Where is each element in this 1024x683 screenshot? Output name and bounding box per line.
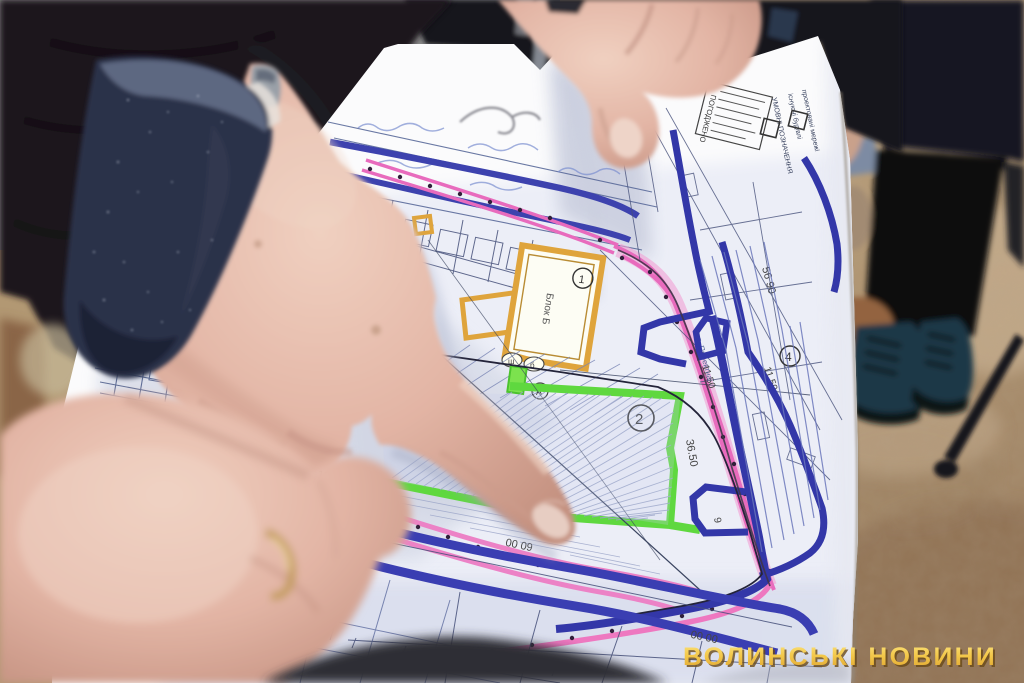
svg-text:ВОЛИНСЬКІ НОВИНИ: ВОЛИНСЬКІ НОВИНИ: [683, 643, 997, 671]
